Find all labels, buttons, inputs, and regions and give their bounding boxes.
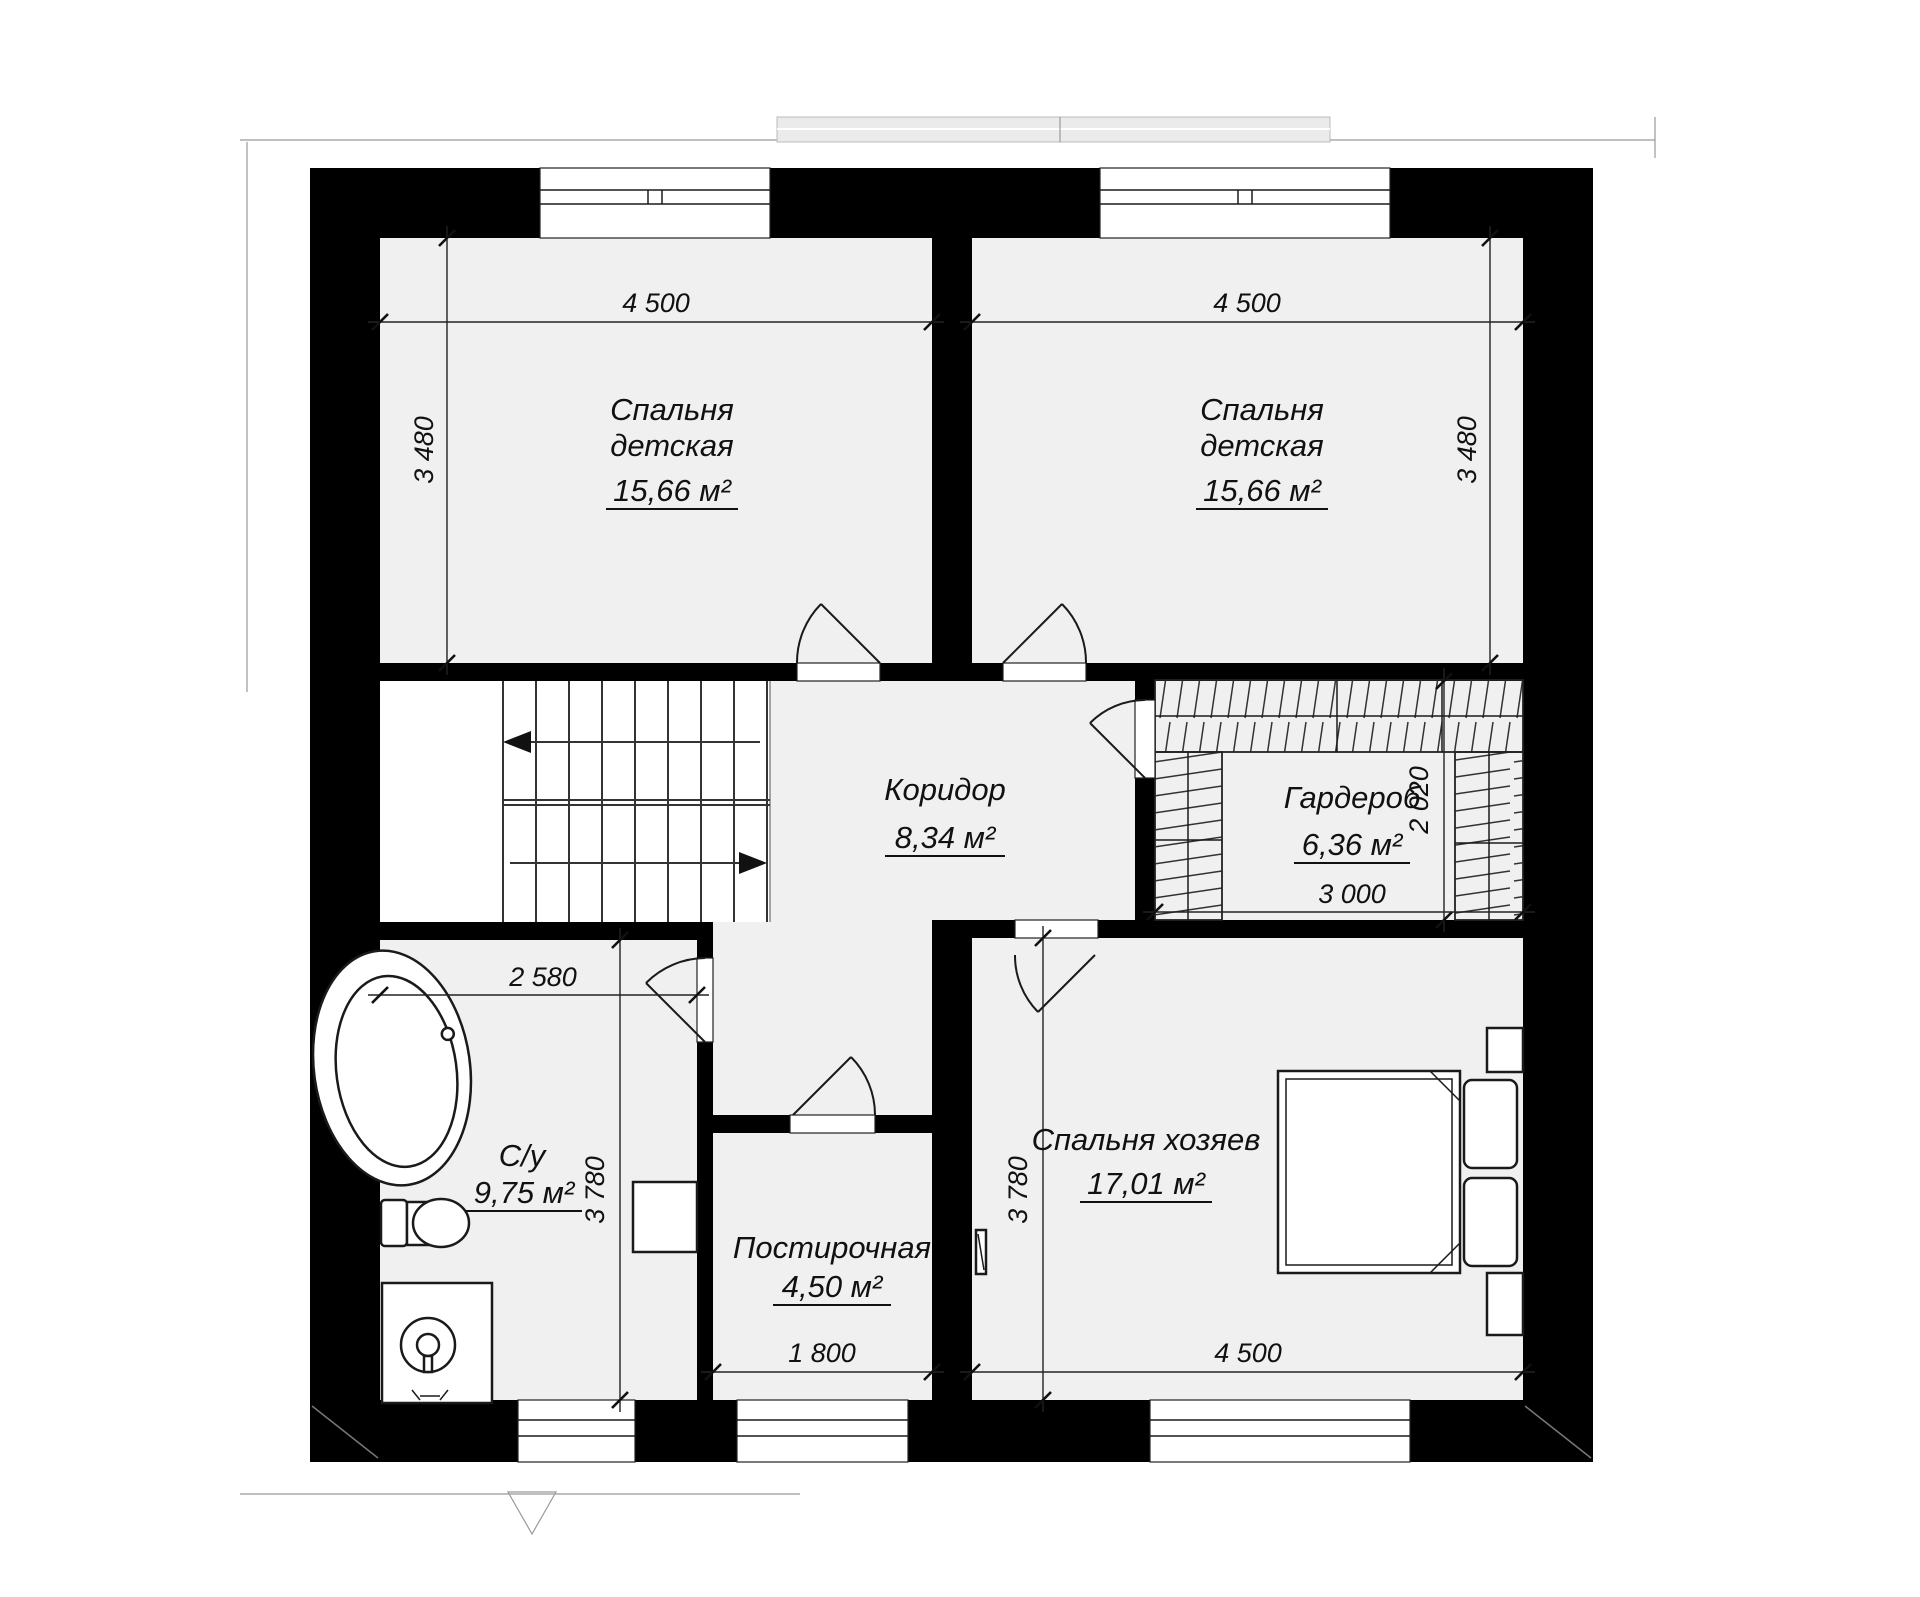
label-bedroom-left: Спальня детская 15,66 м²	[606, 392, 738, 509]
nightstand	[1487, 1273, 1523, 1335]
room-name: Спальня	[610, 392, 734, 427]
dim-label: 3 480	[1452, 416, 1482, 484]
roof-mark	[508, 1492, 556, 1534]
vanity-sink	[382, 1283, 492, 1403]
window-master-bedroom	[1150, 1400, 1410, 1462]
room-area: 8,34 м²	[895, 820, 997, 855]
room-name: Спальня	[1200, 392, 1324, 427]
floor-plan-page: 4 500 4 500 3 480 3 480 2 020	[0, 0, 1920, 1597]
window-laundry	[737, 1400, 908, 1462]
room-name: С/у	[499, 1138, 548, 1173]
dim-label: 4 500	[622, 288, 690, 318]
dim-label: 1 800	[788, 1338, 856, 1368]
window-bedroom-left	[540, 168, 770, 238]
dim-label: 3 480	[409, 416, 439, 484]
room-name: Коридор	[884, 772, 1006, 807]
room-name: Гардероб	[1284, 780, 1422, 815]
dim-label: 4 500	[1214, 1338, 1282, 1368]
dim-label: 3 000	[1318, 879, 1386, 909]
window-bedroom-right	[1100, 168, 1390, 238]
pillow	[1464, 1080, 1517, 1168]
dim-label: 4 500	[1213, 288, 1281, 318]
room-area: 4,50 м²	[782, 1269, 884, 1304]
room-area: 6,36 м²	[1302, 827, 1404, 862]
room-area: 17,01 м²	[1087, 1166, 1206, 1201]
stairwell	[380, 681, 770, 922]
pillow	[1464, 1178, 1517, 1266]
room-area: 9,75 м²	[474, 1175, 576, 1210]
room-name: Постирочная	[733, 1230, 931, 1265]
room-area: 15,66 м²	[613, 473, 732, 508]
dim-label: 3 780	[1003, 1156, 1033, 1224]
window-bathroom	[518, 1400, 635, 1462]
dim-label: 2 580	[508, 962, 577, 992]
room-name: Спальня хозяев	[1032, 1122, 1261, 1157]
dim-label: 3 780	[580, 1156, 610, 1224]
room-name: детская	[610, 428, 733, 463]
toilet	[381, 1199, 469, 1247]
wall-mirror	[976, 1230, 986, 1274]
room-name: детская	[1200, 428, 1323, 463]
room-area: 15,66 м²	[1203, 473, 1322, 508]
floor-plan-svg: 4 500 4 500 3 480 3 480 2 020	[0, 0, 1920, 1597]
label-bedroom-right: Спальня детская 15,66 м²	[1196, 392, 1328, 509]
nightstand	[1487, 1028, 1523, 1072]
washing-machine	[633, 1182, 697, 1252]
